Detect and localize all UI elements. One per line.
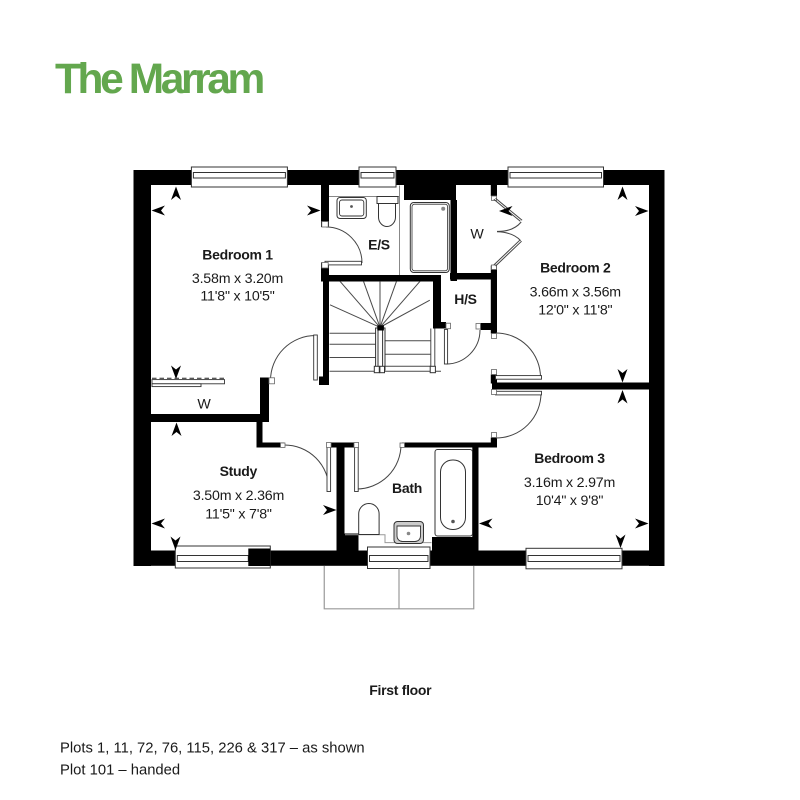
- svg-text:E/S: E/S: [368, 236, 390, 252]
- svg-text:3.66m x 3.56m: 3.66m x 3.56m: [530, 285, 621, 301]
- svg-text:3.58m x 3.20m: 3.58m x 3.20m: [192, 271, 283, 287]
- svg-text:3.50m x 2.36m: 3.50m x 2.36m: [193, 488, 284, 504]
- svg-text:Study: Study: [220, 463, 258, 479]
- svg-text:11'5" x 7'8": 11'5" x 7'8": [205, 507, 272, 523]
- svg-text:W: W: [470, 226, 484, 242]
- svg-text:3.16m x 2.97m: 3.16m x 2.97m: [524, 475, 615, 491]
- svg-text:12'0" x 11'8": 12'0" x 11'8": [538, 303, 612, 319]
- svg-text:H/S: H/S: [454, 291, 476, 307]
- svg-text:W: W: [197, 397, 211, 413]
- svg-text:10'4" x 9'8": 10'4" x 9'8": [536, 493, 604, 509]
- svg-text:Bedroom 2: Bedroom 2: [540, 259, 611, 275]
- svg-text:Bedroom 3: Bedroom 3: [534, 450, 605, 466]
- svg-text:Bedroom 1: Bedroom 1: [202, 247, 273, 263]
- svg-text:Bath: Bath: [392, 480, 422, 496]
- svg-text:Plots 1, 11, 72, 76, 115, 226: Plots 1, 11, 72, 76, 115, 226 & 317 – as…: [60, 741, 365, 757]
- svg-text:11'8" x 10'5": 11'8" x 10'5": [200, 289, 274, 305]
- svg-text:Plot 101 – handed: Plot 101 – handed: [60, 763, 180, 779]
- svg-text:First floor: First floor: [369, 682, 432, 698]
- svg-text:The Marram: The Marram: [55, 56, 264, 103]
